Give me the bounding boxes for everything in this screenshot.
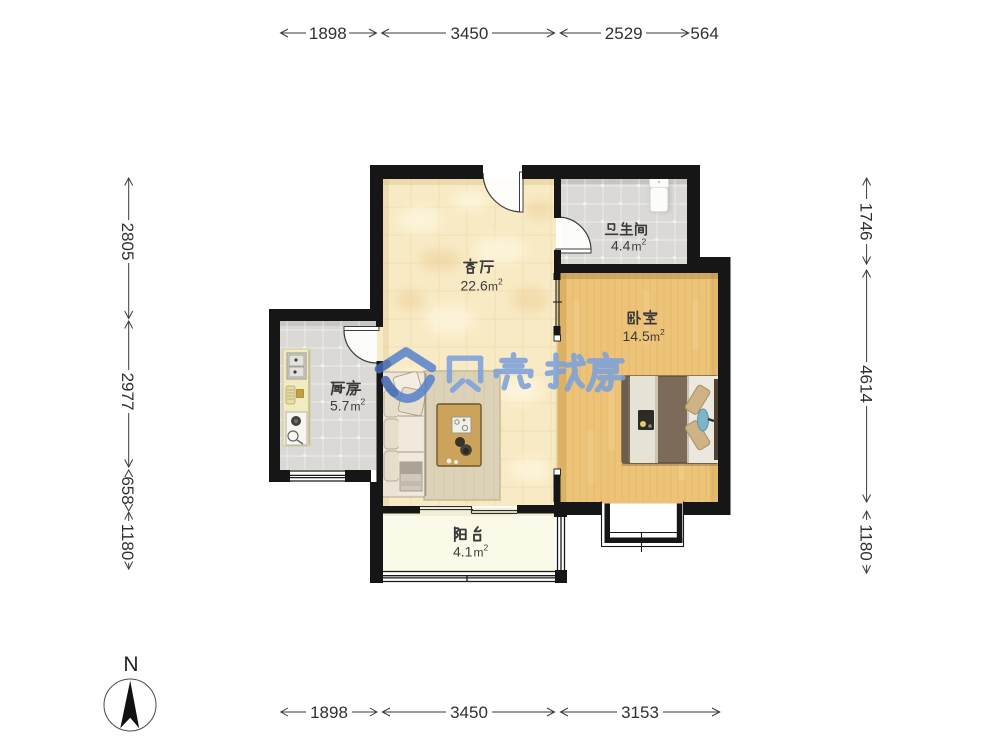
svg-text:m: m (632, 240, 642, 254)
svg-text:2: 2 (484, 543, 489, 553)
svg-text:2: 2 (660, 327, 665, 337)
svg-text:1746: 1746 (856, 203, 875, 241)
svg-text:2: 2 (361, 397, 366, 407)
svg-text:2977: 2977 (118, 373, 137, 411)
svg-text:1180: 1180 (118, 524, 137, 561)
svg-text:1898: 1898 (310, 703, 348, 722)
svg-text:4.1: 4.1 (453, 544, 473, 560)
svg-text:14.5: 14.5 (623, 328, 650, 344)
svg-text:m: m (488, 280, 498, 294)
svg-text:2529: 2529 (605, 24, 643, 43)
svg-text:3450: 3450 (450, 24, 488, 43)
svg-text:3153: 3153 (621, 703, 659, 722)
svg-text:1180: 1180 (856, 524, 875, 561)
svg-text:4.4: 4.4 (611, 238, 631, 254)
svg-text:564: 564 (690, 24, 718, 43)
svg-text:m: m (474, 546, 484, 560)
svg-text:22.6: 22.6 (461, 278, 488, 294)
svg-text:m: m (650, 330, 660, 344)
svg-text:4614: 4614 (856, 365, 875, 403)
svg-text:m: m (351, 400, 361, 414)
svg-text:3450: 3450 (450, 703, 488, 722)
svg-text:2805: 2805 (118, 223, 137, 261)
svg-text:658: 658 (118, 476, 137, 504)
svg-text:N: N (123, 653, 138, 676)
svg-text:5.7: 5.7 (330, 398, 350, 414)
svg-text:1898: 1898 (309, 24, 347, 43)
svg-text:2: 2 (642, 237, 647, 247)
svg-text:2: 2 (498, 277, 503, 287)
